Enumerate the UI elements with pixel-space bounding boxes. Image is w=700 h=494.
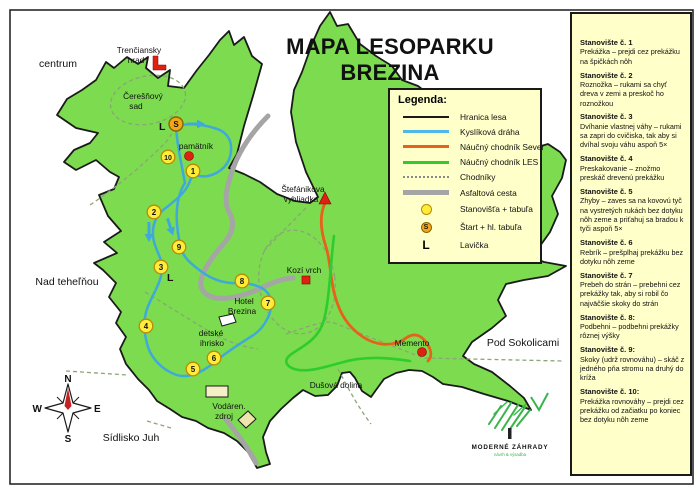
station-entry-5: Stanovište č. 5 Zhyby – zaves sa na kovo… (580, 187, 685, 234)
logo-trunk (508, 428, 512, 439)
svg-text:3: 3 (159, 263, 164, 272)
svg-text:8: 8 (240, 277, 245, 286)
start-marker: S (169, 117, 183, 131)
label-vodaren: Vodáren. (212, 401, 245, 411)
station-entry-7: Stanovište č. 7 Prebeh do strán – prebeh… (580, 271, 685, 308)
blue-trail-line-icon (398, 130, 454, 133)
label-ihrisko: detské (199, 328, 224, 338)
kozi-vrch-marker (302, 276, 310, 284)
svg-text:zdroj: zdroj (215, 411, 233, 421)
compass-rose: N S W E (33, 374, 101, 445)
svg-text:1: 1 (191, 167, 196, 176)
svg-text:vyhliadka: vyhliadka (284, 194, 319, 204)
svg-text:hrad: hrad (128, 55, 145, 65)
svg-text:4: 4 (144, 322, 149, 331)
logo-name: MODERNÉ ZÁHRADY (472, 442, 549, 451)
station-entry-6: Stanovište č. 6 Rebrík – prešplhaj preká… (580, 238, 685, 266)
bench-symbol-icon: L (398, 238, 454, 252)
station-marker-6: 6 (207, 351, 221, 365)
road-line-icon (398, 190, 454, 195)
label-nad-tehelnou: Nad teheľňou (35, 276, 98, 288)
legend-item-stanovista: Stanovišťa + tabuľa (398, 200, 534, 218)
svg-text:sad: sad (129, 101, 143, 111)
legend-box: Legenda: Hranica lesa Kyslíková dráha Ná… (388, 88, 542, 264)
legend-item-sever: Náučný chodník Sever (398, 139, 534, 154)
path-sidlisko-2 (147, 421, 171, 428)
svg-text:6: 6 (212, 354, 217, 363)
label-pamatnik: pamätník (179, 141, 214, 151)
station-entry-8: Stanovište č. 8: Podbehni – podbehni pre… (580, 313, 685, 341)
trenciansky-hrad-icon (153, 56, 166, 70)
logo-chevron-icon (531, 393, 548, 410)
svg-text:Brezina: Brezina (228, 306, 257, 316)
green-trail-line-icon (398, 161, 454, 164)
svg-text:5: 5 (191, 365, 196, 374)
legend-item-start: S Štart + hl. tabuľa (398, 218, 534, 236)
forest-border-line-icon (398, 116, 454, 118)
label-vyhliadka: Štefánikova (281, 184, 325, 194)
stations-sidebar: Stanovište č. 1 Prekážka – prejdi cez pr… (570, 12, 692, 476)
station-marker-4: 4 (139, 319, 153, 333)
bench-symbol-1: L (159, 121, 166, 133)
station-marker-3: 3 (154, 260, 168, 274)
path-sidlisko-1 (66, 371, 128, 375)
station-marker-10: 10 (161, 150, 175, 164)
legend-item-chodniky: Chodníky (398, 170, 534, 185)
legend-item-asfaltova: Asfaltová cesta (398, 185, 534, 200)
compass-s: S (65, 434, 72, 445)
legend-item-lavicka: L Lavička (398, 236, 534, 254)
compass-e: E (94, 404, 101, 415)
svg-text:9: 9 (177, 243, 182, 252)
legend-item-kyslikova: Kyslíková dráha (398, 124, 534, 139)
logo-tagline: návrh & výsadba (494, 452, 527, 457)
legend-title: Legenda: (398, 94, 534, 106)
station-circle-icon (398, 204, 454, 215)
orange-trail-line-icon (398, 145, 454, 148)
label-memento: Memento (395, 338, 430, 348)
label-hotel: Hotel (234, 296, 254, 306)
label-ceresnovy-sad: Čerešňový (123, 91, 164, 101)
station-entry-9: Stanovište č. 9: Skoky (udrž rovnováhu) … (580, 345, 685, 382)
start-circle-icon: S (398, 222, 454, 233)
station-entry-10: Stanovište č. 10: Prekážka rovnováhy – p… (580, 387, 685, 424)
station-entry-3: Stanovište č. 3 Dvíhanie vlastnej váhy –… (580, 112, 685, 149)
map-page: S 10 1 2 9 3 8 7 (0, 0, 700, 494)
station-entry-2: Stanovište č. 2 Roznožka – rukami sa chy… (580, 71, 685, 108)
label-dusova-dolina: Dušová dolina (310, 380, 363, 390)
svg-text:ihrisko: ihrisko (200, 338, 224, 348)
start-symbol: S (173, 120, 179, 129)
dashed-path-line-icon (398, 176, 454, 178)
pamatnik-marker (185, 152, 194, 161)
station-marker-2: 2 (147, 205, 161, 219)
station-marker-8: 8 (235, 274, 249, 288)
label-pod-sokolicami: Pod Sokolicami (487, 337, 559, 349)
legend-item-les: Náučný chodník LES (398, 155, 534, 170)
station-marker-9: 9 (172, 240, 186, 254)
label-trenciansky-hrad: Trenčiansky (117, 45, 162, 55)
station-entry-4: Stanovište č. 4 Preskakovanie – znožmo p… (580, 154, 685, 182)
vodaren-building-1 (206, 386, 228, 397)
svg-text:7: 7 (266, 299, 271, 308)
label-kozi-vrch: Kozí vrch (287, 265, 322, 275)
logo-tree-icon (489, 402, 530, 430)
svg-text:10: 10 (164, 155, 172, 162)
bench-symbol-2: L (167, 272, 174, 284)
station-marker-7: 7 (261, 296, 275, 310)
station-marker-5: 5 (186, 362, 200, 376)
page-title: MAPA LESOPARKU BREZINA (240, 34, 540, 86)
station-entry-1: Stanovište č. 1 Prekážka – prejdi cez pr… (580, 38, 685, 66)
compass-w: W (33, 404, 43, 415)
label-centrum: centrum (39, 58, 77, 70)
memento-marker (418, 348, 427, 357)
label-sidlisko-juh: Sídlisko Juh (103, 432, 160, 444)
svg-text:2: 2 (152, 208, 157, 217)
compass-n: N (64, 374, 71, 385)
station-marker-1: 1 (186, 164, 200, 178)
legend-item-hranica: Hranica lesa (398, 109, 534, 124)
